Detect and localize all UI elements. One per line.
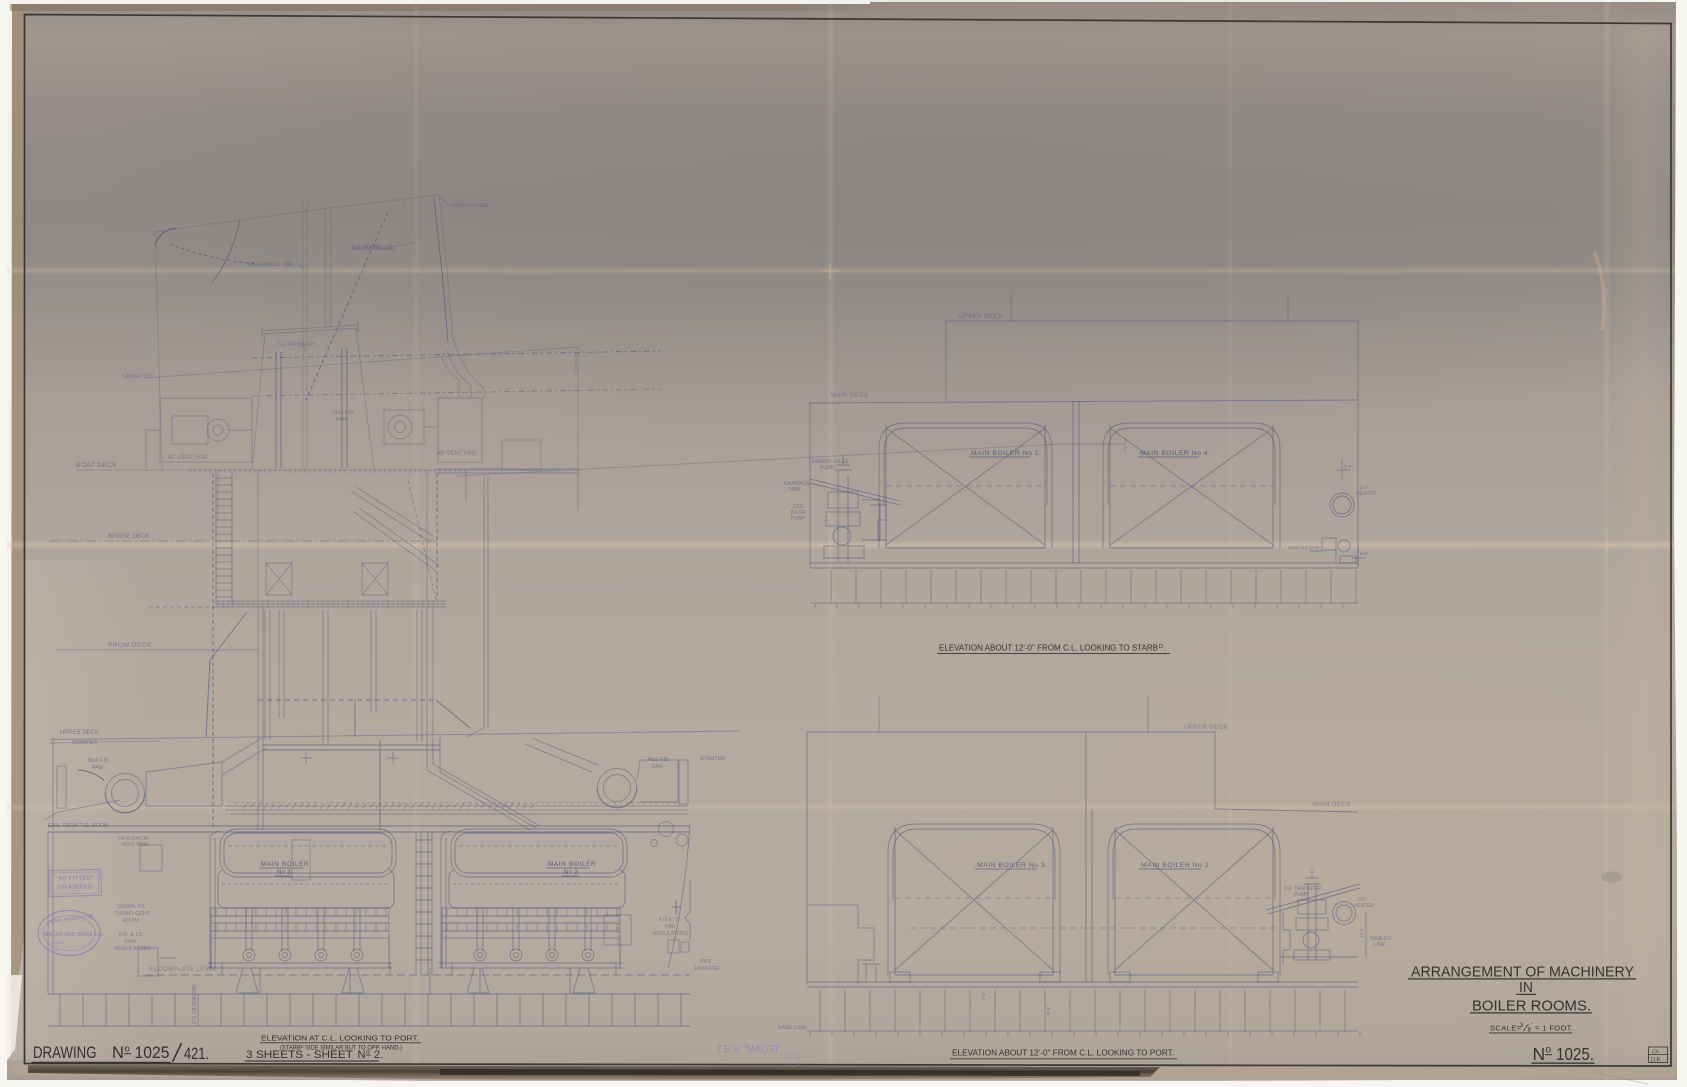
svg-text:1025: 1025 (135, 1044, 170, 1062)
svg-text:PUMP: PUMP (820, 465, 835, 471)
svg-text:N: N (1533, 1044, 1546, 1064)
svg-text:F.D.& I.D.: F.D.& I.D. (659, 917, 681, 923)
svg-text:LINE: LINE (1374, 942, 1386, 948)
svg-text:No3 F.D.: No3 F.D. (88, 758, 110, 764)
svg-text:2'-5 7/8 SPACING: 2'-5 7/8 SPACING (192, 984, 198, 1024)
svg-text:HEATER: HEATER (1354, 903, 1374, 909)
svg-text:DOWN TO: DOWN TO (118, 904, 145, 910)
svg-text:1025.: 1025. (1556, 1044, 1594, 1064)
svg-text:o: o (366, 1049, 370, 1056)
svg-text:MAIN DECK: MAIN DECK (1313, 802, 1351, 808)
svg-text:FEED TANK: FEED TANK (121, 842, 149, 848)
svg-text:MAIN BOILER No 2.: MAIN BOILER No 2. (1141, 862, 1211, 869)
svg-text:FAN: FAN (652, 764, 663, 770)
svg-text:PIPE: PIPE (700, 959, 712, 965)
svg-text:MAIN D.F. LINE: MAIN D.F. LINE (1288, 545, 1320, 550)
svg-text:ˀ′ьо′: ˀ′ьо′ (50, 947, 59, 953)
svg-text:o: o (1546, 1045, 1552, 1056)
svg-text:5'-9": 5'-9" (1046, 1006, 1051, 1015)
svg-text:ELEVATION ABOUT 12'-0" FROM C.: ELEVATION ABOUT 12'-0" FROM C.L. LOOKING… (952, 1049, 1174, 1058)
svg-text:T.G. ROOM EXH.: T.G. ROOM EXH. (277, 342, 316, 348)
svg-text:No 1184: No 1184 (52, 941, 65, 945)
svg-text:MAIN BOILER No 1.: MAIN BOILER No 1. (971, 450, 1041, 457)
svg-text:REGULATORS: REGULATORS (114, 946, 152, 952)
svg-text:D.P.: D.P. (1651, 1057, 1661, 1063)
svg-text:MAIN BOILER: MAIN BOILER (548, 861, 596, 868)
svg-text:2.: 2. (374, 1049, 383, 1061)
svg-text:5'-9": 5'-9" (1360, 551, 1369, 556)
svg-text:T.G. EXHAUST LINE: T.G. EXHAUST LINE (247, 262, 294, 268)
svg-text:CASING FUNNEL: CASING FUNNEL (449, 203, 490, 209)
svg-text:F.D. & I.D.: F.D. & I.D. (119, 932, 145, 938)
svg-text:No2 F.D.: No2 F.D. (648, 757, 670, 763)
svg-text:HEATER: HEATER (1356, 491, 1376, 497)
svg-text:MAIN BOILER No 4.: MAIN BOILER No 4. (1140, 450, 1210, 457)
svg-text:DRAWING: DRAWING (33, 1044, 97, 1062)
svg-text:BRIDGE DECK: BRIDGE DECK (108, 534, 149, 540)
svg-text:ELEVATION AT C.L. LOOKING TO P: ELEVATION AT C.L. LOOKING TO PORT. (261, 1034, 419, 1043)
svg-text:PROM DECK: PROM DECK (108, 642, 152, 649)
svg-text:No3 F.D.: No3 F.D. (333, 410, 355, 416)
svg-text:FAN: FAN (665, 924, 675, 930)
svg-text:TURBO-GENT: TURBO-GENT (114, 911, 151, 917)
svg-text:BASE LINE: BASE LINE (778, 1025, 807, 1031)
svg-text:DRAWING: DRAWING (57, 884, 93, 892)
svg-text:BOILER ROOMS.: BOILER ROOMS. (1472, 997, 1591, 1014)
svg-text:No 3: No 3 (277, 869, 291, 877)
svg-text:FAN: FAN (336, 417, 347, 423)
svg-text:PUMP: PUMP (1294, 892, 1309, 898)
svg-text:.: . (1164, 644, 1166, 653)
svg-text:UPPER DECK: UPPER DECK (959, 314, 1003, 320)
svg-text:TANK: TANK (788, 487, 802, 493)
svg-text:421.: 421. (184, 1045, 209, 1063)
svg-text:N: N (112, 1044, 124, 1062)
svg-text:O.B. FUNNEL LINE: O.B. FUNNEL LINE (352, 245, 396, 251)
svg-text:WALSH·AND·SONS·LTD: WALSH·AND·SONS·LTD (44, 932, 103, 938)
svg-text:o: o (125, 1044, 130, 1055)
svg-text:No 2: No 2 (564, 869, 578, 877)
svg-text:D: D (1159, 644, 1163, 650)
svg-text:MAIN BOILER No 3.: MAIN BOILER No 3. (977, 862, 1047, 869)
svg-text:EXH. FROM T.G. ROOM: EXH. FROM T.G. ROOM (48, 823, 109, 829)
svg-text:STARTER: STARTER (72, 740, 97, 746)
svg-text:2'-2": 2'-2" (981, 991, 986, 1000)
svg-text:"AS FITTED": "AS FITTED" (56, 875, 94, 882)
svg-text:ELEVATION ABOUT 12'-0" FROM C.: ELEVATION ABOUT 12'-0" FROM C.L. LOOKING… (939, 644, 1158, 653)
svg-text:FAN: FAN (92, 765, 103, 771)
svg-text:UPPER DECK: UPPER DECK (60, 730, 99, 736)
svg-text:BOAT DECK: BOAT DECK (76, 462, 118, 469)
svg-text:IN: IN (1519, 980, 1533, 996)
svg-text:PASSAGE: PASSAGE (695, 966, 720, 972)
svg-text:46' VENT FAN: 46' VENT FAN (437, 451, 476, 457)
svg-text:UPPER DECK: UPPER DECK (1184, 725, 1228, 731)
svg-text:REGULATORS: REGULATORS (653, 931, 689, 937)
svg-text:PUMP: PUMP (791, 516, 806, 522)
svg-text:ARRANGEMENT OF MACHINERY: ARRANGEMENT OF MACHINERY (1411, 963, 1634, 980)
svg-text:MAIN BOILER: MAIN BOILER (261, 861, 309, 868)
svg-text:STARTER: STARTER (700, 756, 725, 762)
svg-text:11'-2: 11'-2 (1359, 928, 1364, 938)
svg-text:3 SHEETS - SHEET: 3 SHEETS - SHEET (246, 1049, 353, 1061)
svg-text:MAIN DECK: MAIN DECK (831, 393, 869, 399)
svg-text:ROOM: ROOM (122, 918, 140, 924)
svg-text:FAN: FAN (125, 939, 136, 945)
svg-text:FLOORPLATE LEVEL: FLOORPLATE LEVEL (150, 967, 218, 973)
svg-text:= 1 FOOT.: = 1 FOOT. (1535, 1024, 1573, 1033)
svg-text:CASING TOP: CASING TOP (122, 374, 153, 380)
svg-text:1'-6": 1'-6" (1344, 464, 1353, 469)
svg-text:SCALE=: SCALE= (1490, 1024, 1522, 1033)
svg-text:": " (1532, 1023, 1534, 1029)
svg-text:N: N (358, 1049, 366, 1061)
svg-text:40' VENT FAN: 40' VENT FAN (168, 455, 207, 461)
svg-text:T.E.V. "MAORI": T.E.V. "MAORI" (717, 1044, 781, 1056)
